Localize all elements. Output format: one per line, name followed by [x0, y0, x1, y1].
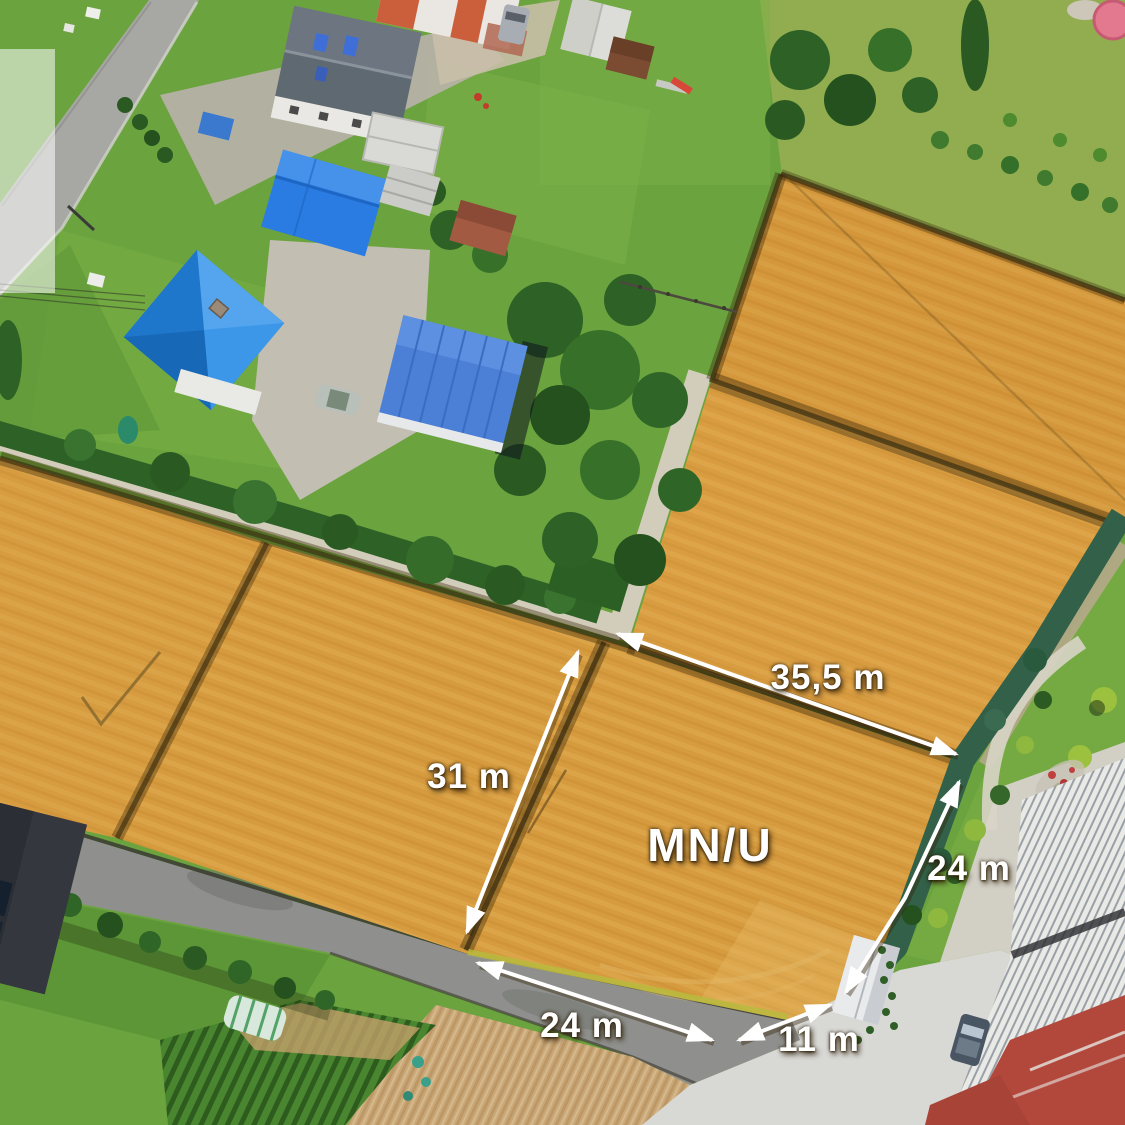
- measurement-label-bottom-24m: 24 m: [540, 1006, 624, 1046]
- aerial-photo-stage: 35,5 m 31 m MN/U 24 m 24 m 11 m: [0, 0, 1125, 1125]
- measurement-label-right-24m: 24 m: [927, 849, 1011, 889]
- aerial-scene: [0, 0, 1125, 1125]
- measurement-label-31m: 31 m: [427, 757, 511, 797]
- trampoline: [1094, 1, 1125, 39]
- measurement-label-35-5m: 35,5 m: [771, 658, 886, 698]
- privacy-overlay-rect: [0, 49, 55, 293]
- measurement-label-11m: 11 m: [778, 1020, 860, 1060]
- plot-label-mnu: MN/U: [647, 818, 773, 872]
- water-barrel: [118, 416, 138, 444]
